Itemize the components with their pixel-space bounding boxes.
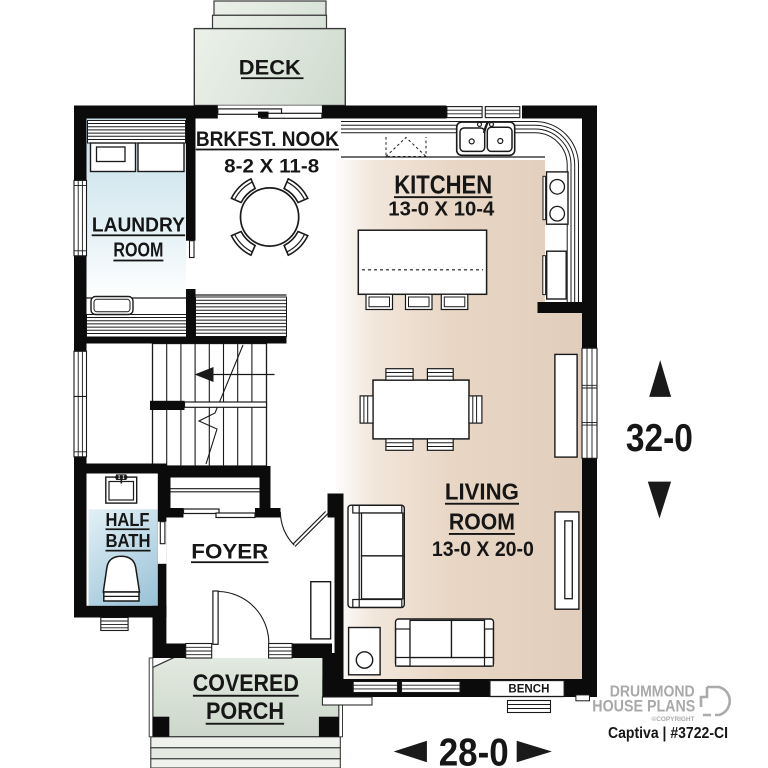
svg-text:ROOM: ROOM: [113, 240, 163, 262]
svg-text:BRKFST. NOOK: BRKFST. NOOK: [196, 127, 339, 151]
svg-text:HOUSE PLANS: HOUSE PLANS: [592, 698, 695, 716]
svg-text:32-0: 32-0: [626, 417, 693, 460]
svg-text:13-0 X 20-0: 13-0 X 20-0: [432, 538, 534, 561]
svg-text:BATH: BATH: [106, 530, 151, 551]
svg-text:Captiva | #3722-CI: Captiva | #3722-CI: [608, 725, 728, 742]
svg-text:HALF: HALF: [106, 509, 150, 530]
svg-text:LAUNDRY: LAUNDRY: [92, 215, 186, 237]
svg-text:8-2 X 11-8: 8-2 X 11-8: [224, 156, 319, 178]
svg-text:DECK: DECK: [239, 56, 301, 80]
svg-text:ROOM: ROOM: [449, 509, 515, 535]
svg-text:©COPYRIGHT: ©COPYRIGHT: [652, 716, 695, 723]
svg-text:28-0: 28-0: [439, 731, 509, 768]
svg-text:BENCH: BENCH: [508, 683, 549, 695]
svg-text:FOYER: FOYER: [191, 539, 268, 563]
svg-text:COVERED: COVERED: [193, 670, 299, 697]
svg-text:KITCHEN: KITCHEN: [394, 172, 492, 200]
svg-text:PORCH: PORCH: [206, 698, 284, 725]
svg-text:LIVING: LIVING: [445, 479, 519, 505]
svg-text:13-0 X 10-4: 13-0 X 10-4: [388, 198, 495, 221]
